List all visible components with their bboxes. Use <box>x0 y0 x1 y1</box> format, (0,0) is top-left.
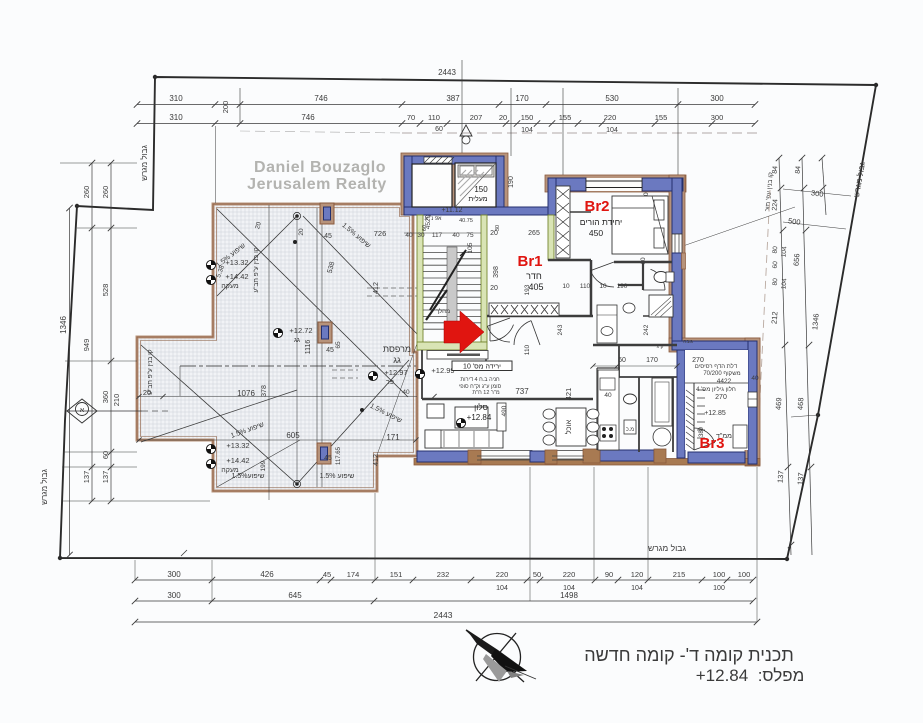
svg-text:190: 190 <box>617 283 628 290</box>
svg-text:174: 174 <box>347 570 360 579</box>
svg-text:207: 207 <box>470 113 483 122</box>
svg-text:100: 100 <box>738 570 751 579</box>
svg-text:40: 40 <box>751 375 759 382</box>
svg-text:40.75: 40.75 <box>459 218 473 224</box>
svg-text:100: 100 <box>713 585 725 592</box>
svg-text:645: 645 <box>288 591 302 600</box>
svg-text:45: 45 <box>323 570 331 579</box>
svg-text:2443: 2443 <box>438 68 456 77</box>
svg-text:80: 80 <box>772 246 780 254</box>
svg-text:גבול מגרש: גבול מגרש <box>140 145 149 181</box>
svg-text:מהלך: מהלך <box>436 307 450 315</box>
svg-text:Br1: Br1 <box>517 253 542 270</box>
svg-text:מ"ר 12 ח"ת: מ"ר 12 ח"ת <box>472 390 499 396</box>
svg-text:190: 190 <box>508 176 515 188</box>
svg-text:א: א <box>80 407 85 414</box>
svg-text:20: 20 <box>298 228 305 236</box>
svg-text:70: 70 <box>407 113 415 122</box>
svg-text:137: 137 <box>82 471 91 484</box>
svg-text:20: 20 <box>490 285 498 292</box>
svg-text:260: 260 <box>82 186 91 199</box>
svg-text:232: 232 <box>437 570 450 579</box>
svg-text:80: 80 <box>772 278 780 286</box>
svg-text:מ.כ: מ.כ <box>626 427 634 433</box>
svg-text:155: 155 <box>559 113 572 122</box>
svg-text:469: 469 <box>773 397 783 410</box>
svg-text:215: 215 <box>673 570 686 579</box>
svg-text:חדר: חדר <box>526 271 542 281</box>
svg-text:1116: 1116 <box>305 340 312 355</box>
svg-text:150: 150 <box>474 185 488 194</box>
svg-text:265: 265 <box>528 230 540 237</box>
svg-text:500: 500 <box>788 216 802 227</box>
svg-text:468: 468 <box>795 397 805 410</box>
svg-text:170: 170 <box>646 357 658 364</box>
svg-text:450: 450 <box>589 228 603 238</box>
svg-text:4422: 4422 <box>717 378 732 385</box>
svg-text:20: 20 <box>499 113 507 122</box>
svg-text:+13.32: +13.32 <box>226 441 249 450</box>
svg-text:+11.12: +11.12 <box>441 207 462 214</box>
svg-text:104: 104 <box>781 278 789 290</box>
svg-text:מעקה: מעקה <box>221 283 239 290</box>
svg-text:398: 398 <box>493 266 500 278</box>
svg-text:412: 412 <box>373 454 380 466</box>
svg-text:737: 737 <box>515 387 529 396</box>
svg-text:קו בנין ע"פ תב"ע: קו בנין ע"פ תב"ע <box>253 247 260 292</box>
svg-text:412: 412 <box>373 282 380 294</box>
svg-text:421: 421 <box>564 388 573 401</box>
svg-text:193: 193 <box>524 284 531 295</box>
svg-text:137: 137 <box>795 472 805 485</box>
svg-text:242: 242 <box>643 324 650 335</box>
svg-text:גג: גג <box>393 355 401 365</box>
svg-text:104: 104 <box>496 585 508 592</box>
svg-text:50: 50 <box>533 570 541 579</box>
svg-text:104: 104 <box>781 246 789 258</box>
svg-text:60: 60 <box>772 261 780 269</box>
svg-text:210: 210 <box>112 394 121 407</box>
svg-text:110: 110 <box>580 283 591 290</box>
svg-text:949: 949 <box>82 339 91 352</box>
svg-text:אוכל: אוכל <box>564 420 573 435</box>
svg-text:+12.85: +12.85 <box>704 410 726 417</box>
svg-text:155: 155 <box>655 113 668 122</box>
svg-text:+12.99: +12.99 <box>431 366 454 375</box>
svg-text:1346: 1346 <box>810 313 820 330</box>
svg-text:105: 105 <box>467 242 474 253</box>
svg-text:212: 212 <box>769 311 779 324</box>
svg-text:יחידת הורים: יחידת הורים <box>580 217 622 227</box>
svg-text:40: 40 <box>604 392 612 399</box>
svg-text:300: 300 <box>711 113 724 122</box>
svg-text:171: 171 <box>386 433 400 442</box>
svg-text:270: 270 <box>715 394 727 401</box>
svg-text:746: 746 <box>301 113 315 122</box>
svg-text:גובה: גובה <box>683 339 693 345</box>
svg-text:+13.32: +13.32 <box>225 258 248 267</box>
svg-text:40: 40 <box>402 389 410 396</box>
svg-text:65: 65 <box>335 341 342 349</box>
svg-text:243: 243 <box>557 324 564 335</box>
svg-text:1346: 1346 <box>59 316 68 334</box>
svg-text:+14.42: +14.42 <box>225 272 248 281</box>
svg-text:קו בנין ע"פ תב"ע: קו בנין ע"פ תב"ע <box>147 349 154 394</box>
svg-text:100: 100 <box>713 570 726 579</box>
svg-text:1076: 1076 <box>237 389 255 398</box>
svg-text:+12.97: +12.97 <box>384 368 407 377</box>
svg-text:110: 110 <box>428 113 440 122</box>
svg-text:1498: 1498 <box>560 591 578 600</box>
svg-text:60: 60 <box>618 357 626 364</box>
svg-text:חלון גיליון מס' 4: חלון גיליון מס' 4 <box>696 385 736 393</box>
svg-text:426: 426 <box>260 570 274 579</box>
svg-text:150: 150 <box>521 113 534 122</box>
svg-text:70/200 משקוף: 70/200 משקוף <box>703 371 740 377</box>
svg-text:45: 45 <box>326 347 334 354</box>
svg-text:605: 605 <box>286 431 300 440</box>
svg-text:מרפסת: מרפסת <box>383 344 411 354</box>
svg-text:45: 45 <box>324 233 332 240</box>
svg-text:10: 10 <box>599 283 607 290</box>
svg-text:310: 310 <box>169 94 183 103</box>
svg-text:10: 10 <box>562 283 570 290</box>
svg-text:Br2: Br2 <box>584 198 609 215</box>
svg-text:220: 220 <box>563 570 576 579</box>
svg-text:2443: 2443 <box>434 610 453 620</box>
svg-text:300: 300 <box>167 591 181 600</box>
svg-text:מעלית: מעלית <box>468 195 487 203</box>
svg-text:ירידה מס' 10: ירידה מס' 10 <box>463 364 501 371</box>
svg-text:300: 300 <box>811 188 825 199</box>
svg-text:סלון: סלון <box>474 403 488 412</box>
svg-text:260: 260 <box>101 186 110 199</box>
svg-text:137: 137 <box>775 470 785 483</box>
svg-text:גבול מגרש: גבול מגרש <box>40 469 49 505</box>
svg-text:60: 60 <box>422 225 428 231</box>
svg-text:120: 120 <box>631 570 644 579</box>
svg-text:תכנית קומה ד'- קומה חדשה: תכנית קומה ד'- קומה חדשה <box>584 645 794 665</box>
svg-text:גג: גג <box>294 337 300 344</box>
svg-text:+12.84: +12.84 <box>696 666 748 685</box>
svg-text:490: 490 <box>501 405 508 416</box>
svg-text:270: 270 <box>692 357 704 364</box>
svg-text:84: 84 <box>795 166 803 174</box>
svg-text:פר: פר <box>386 379 394 386</box>
svg-text:1.5%שיפוע: 1.5%שיפוע <box>232 473 265 480</box>
svg-text:117.65: 117.65 <box>336 446 342 465</box>
svg-text:Daniel Bouzaglo: Daniel Bouzaglo <box>254 159 386 176</box>
svg-text:א9 נ״א: א9 נ״א <box>425 215 443 222</box>
svg-text:378: 378 <box>261 385 268 397</box>
svg-text:151: 151 <box>390 570 403 579</box>
svg-text:גבול מגרש: גבול מגרש <box>648 543 686 553</box>
svg-text:200: 200 <box>221 101 230 114</box>
svg-text:726: 726 <box>374 229 387 238</box>
svg-text:220: 220 <box>604 113 617 122</box>
svg-text:+12.84: +12.84 <box>467 413 492 422</box>
svg-text:387: 387 <box>446 94 460 103</box>
svg-text:45: 45 <box>324 455 332 462</box>
svg-text:104: 104 <box>631 585 643 592</box>
svg-text:530: 530 <box>605 94 619 103</box>
svg-text:300: 300 <box>710 94 724 103</box>
svg-text:656: 656 <box>791 253 801 266</box>
svg-text:+14.42: +14.42 <box>226 456 249 465</box>
svg-text:199: 199 <box>260 460 267 471</box>
svg-text:528: 528 <box>101 284 110 297</box>
svg-text:+12.72: +12.72 <box>289 326 312 335</box>
svg-text:חניה ב.ח 4 דירות: חניה ב.ח 4 דירות <box>460 377 500 383</box>
svg-text:310: 310 <box>169 113 183 122</box>
svg-text:170: 170 <box>515 94 529 103</box>
svg-text:60: 60 <box>435 126 443 133</box>
svg-text:746: 746 <box>314 94 328 103</box>
svg-text::מפלס: :מפלס <box>758 666 805 685</box>
svg-text:30: 30 <box>495 225 501 231</box>
svg-text:1.5% שיפוע: 1.5% שיפוע <box>320 473 355 480</box>
svg-text:90: 90 <box>605 570 613 579</box>
svg-text:מעקה: מעקה <box>221 467 239 474</box>
svg-text:ק"ג: ק"ג <box>657 344 664 350</box>
svg-text:110: 110 <box>524 344 531 355</box>
svg-text:360: 360 <box>101 391 110 404</box>
svg-text:220: 220 <box>496 570 509 579</box>
svg-text:Jerusalem Realty: Jerusalem Realty <box>247 176 387 193</box>
svg-text:300: 300 <box>167 570 181 579</box>
svg-text:137: 137 <box>101 471 110 484</box>
svg-text:Br3: Br3 <box>699 435 724 452</box>
svg-text:224: 224 <box>772 199 780 211</box>
